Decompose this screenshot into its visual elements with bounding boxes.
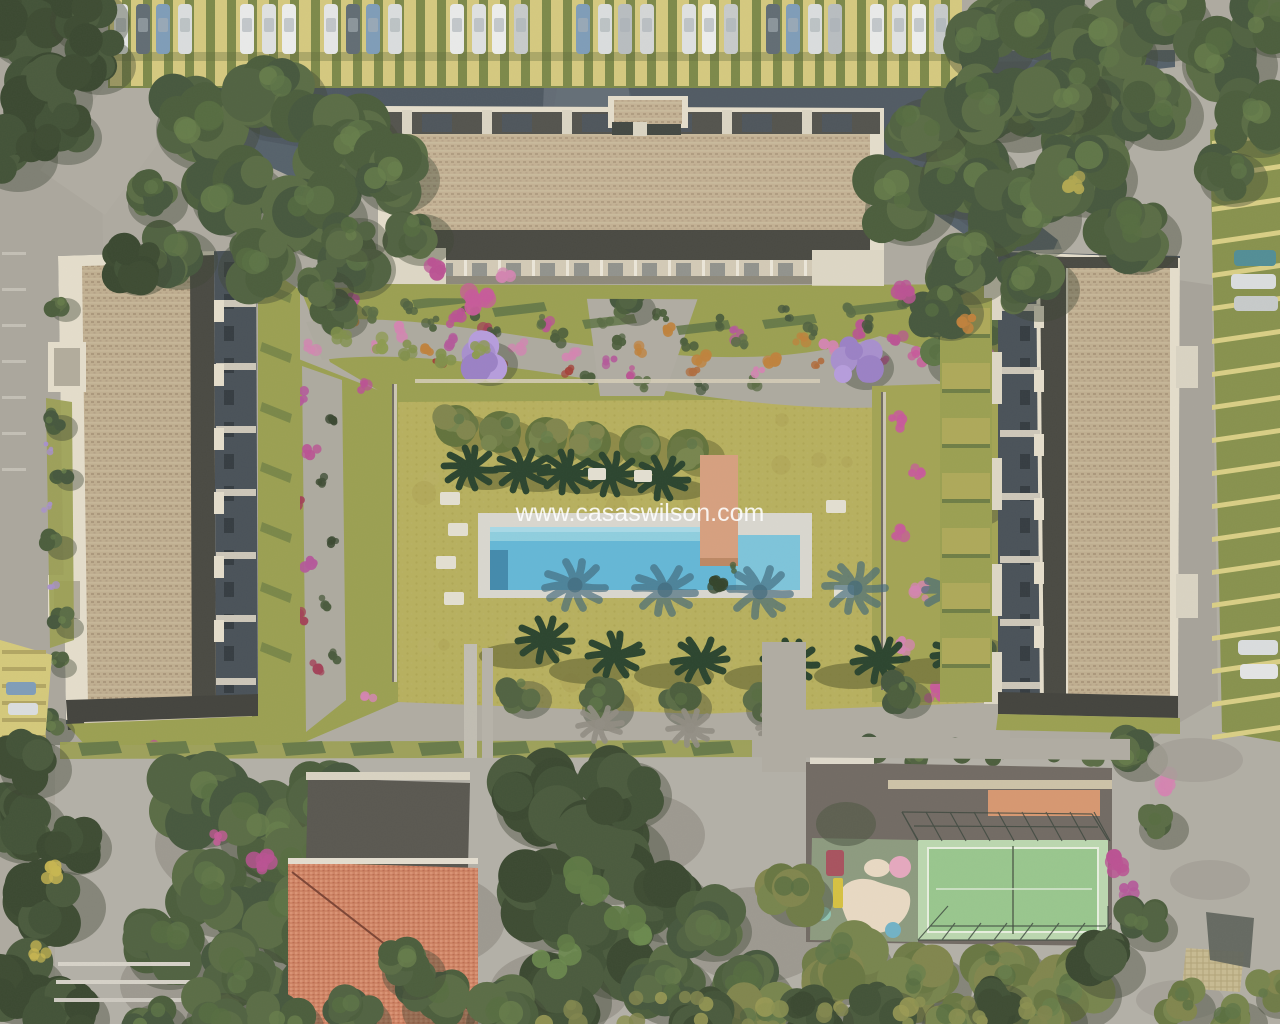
svg-text:www.casaswilson.com: www.casaswilson.com <box>515 499 765 527</box>
